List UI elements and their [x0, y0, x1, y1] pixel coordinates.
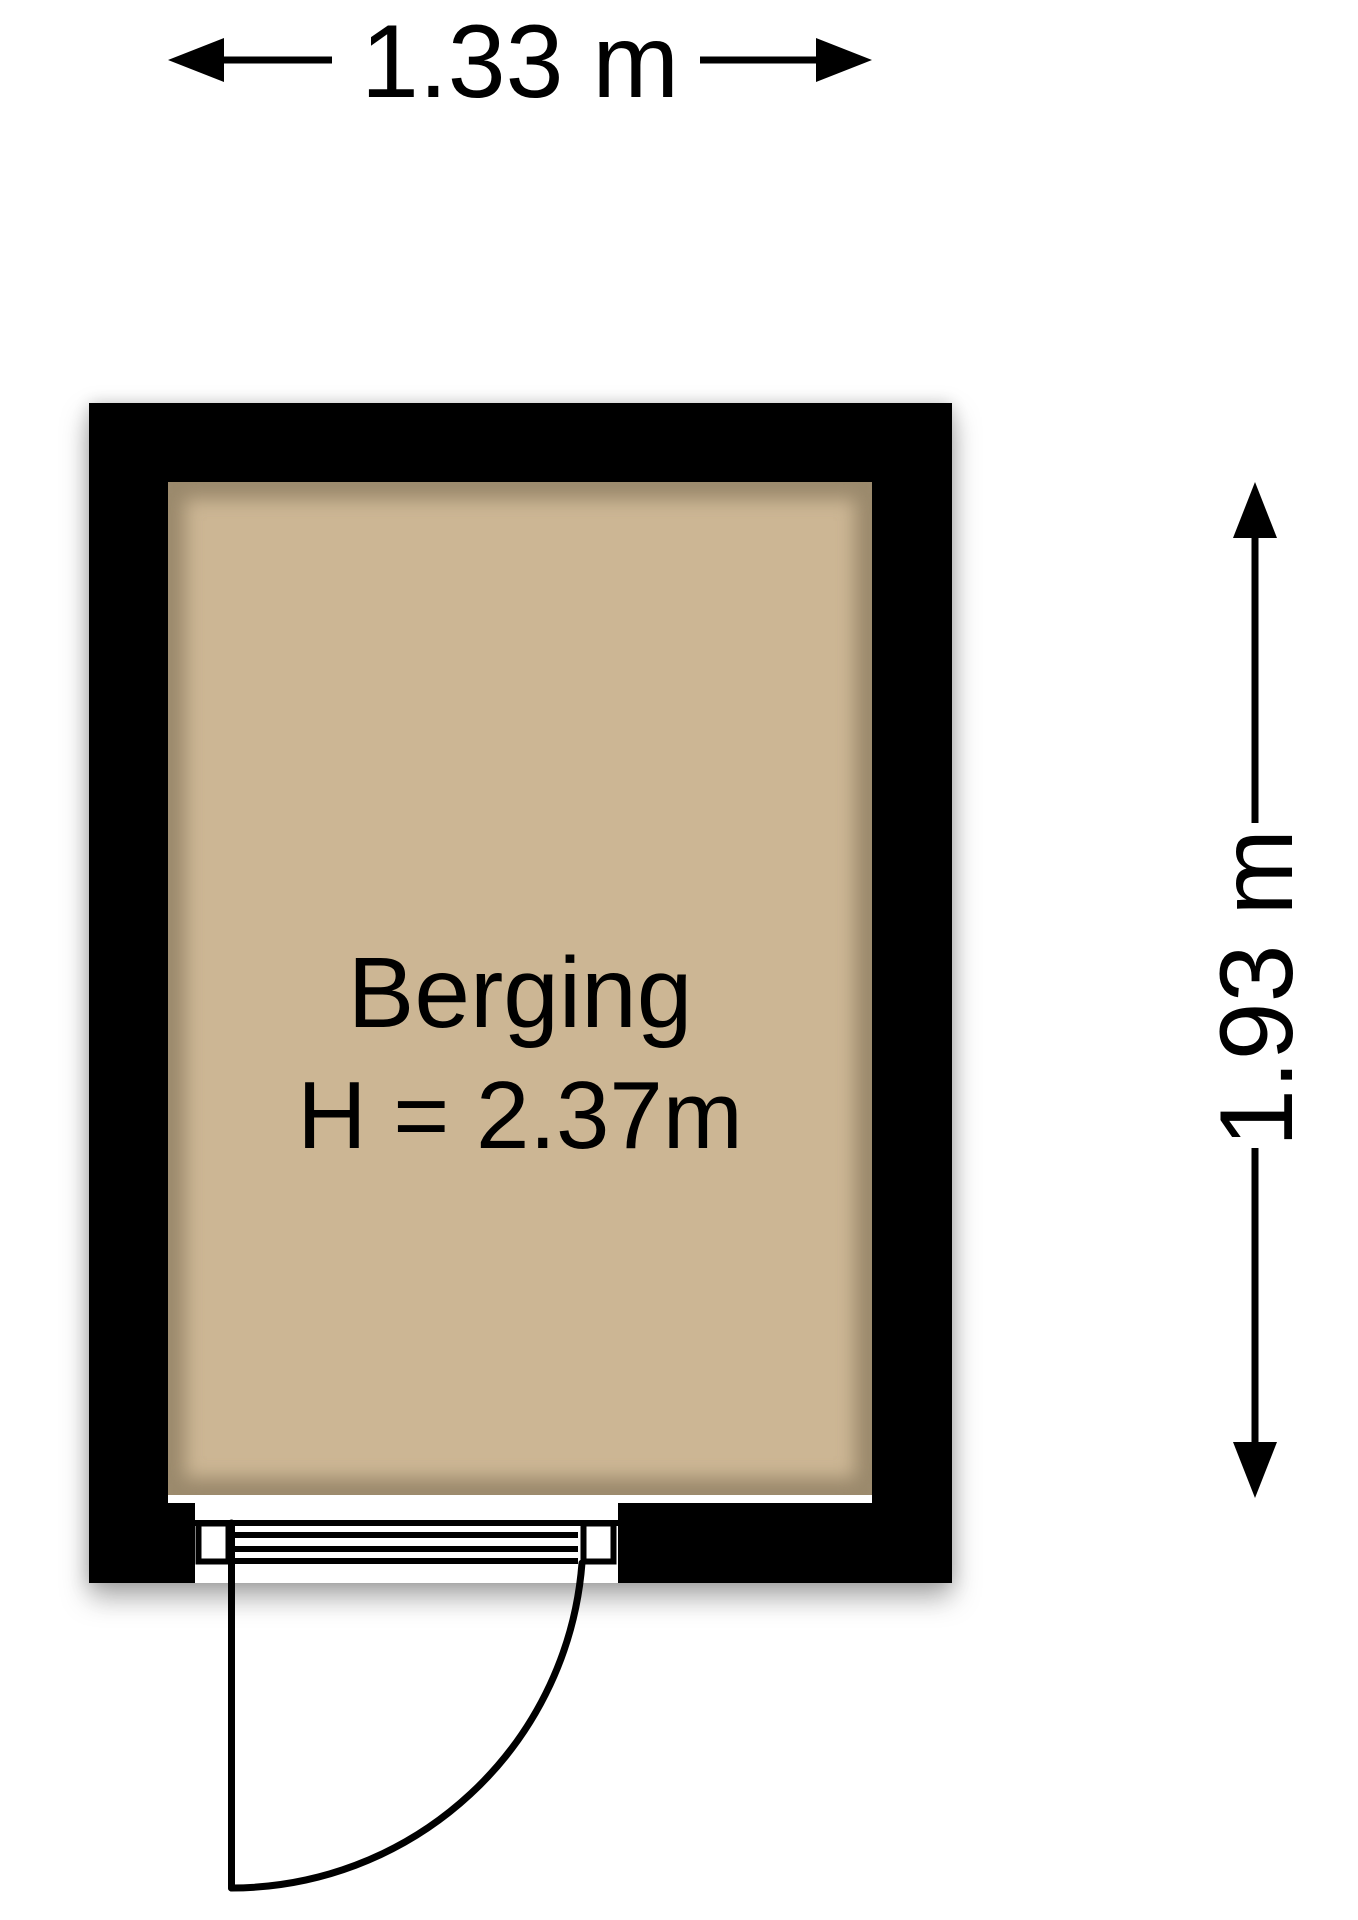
door-threshold-line	[235, 1558, 578, 1564]
dimension-width: 1.33 m	[168, 4, 872, 120]
room-name-label: Berging	[348, 937, 693, 1049]
room-berging: Berging H = 2.37m	[89, 403, 952, 1888]
arrow-down-icon	[1233, 1442, 1277, 1498]
arrow-left-icon	[168, 38, 224, 82]
dimension-height-label: 1.93 m	[1199, 829, 1315, 1147]
door-post-right	[584, 1524, 614, 1562]
door	[195, 1503, 618, 1888]
floor-wall-seam	[168, 1495, 872, 1503]
floor-plan-drawing: Berging H = 2.37m 1.33 m 1.93 m	[0, 0, 1358, 1920]
door-threshold-line	[195, 1520, 618, 1526]
floor-plan-page: Berging H = 2.37m 1.33 m 1.93 m	[0, 0, 1358, 1920]
dimension-line	[1252, 1148, 1259, 1444]
door-threshold-line	[235, 1532, 578, 1538]
door-threshold-line	[235, 1546, 578, 1552]
door-opening	[195, 1503, 618, 1583]
dimension-width-label: 1.33 m	[361, 4, 679, 120]
dimension-line	[221, 57, 332, 64]
dimension-height: 1.93 m	[1199, 482, 1315, 1498]
room-height-label: H = 2.37m	[297, 1062, 743, 1169]
dimension-line	[700, 57, 818, 64]
door-swing-arc	[232, 1563, 583, 1888]
arrow-up-icon	[1233, 482, 1277, 538]
arrow-right-icon	[816, 38, 872, 82]
dimension-line	[1252, 535, 1259, 823]
door-post-left	[199, 1524, 229, 1562]
